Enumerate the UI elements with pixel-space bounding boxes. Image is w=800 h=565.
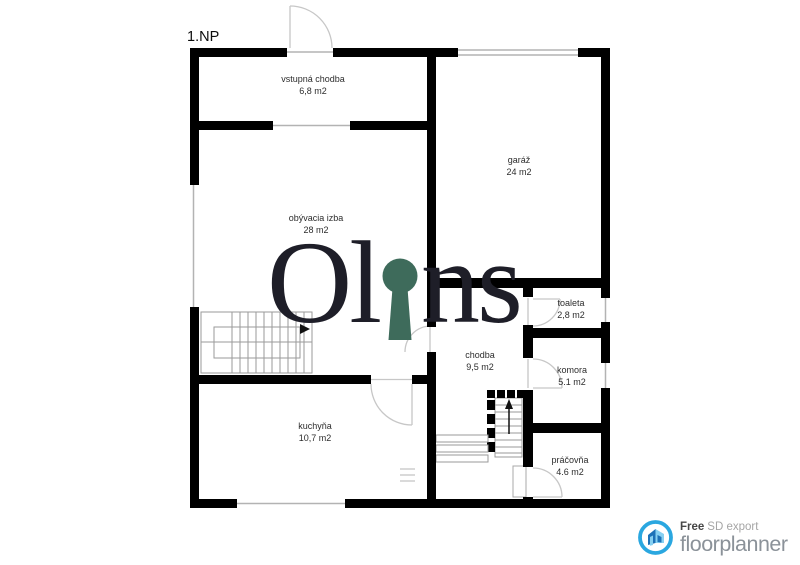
wall-segment xyxy=(523,328,610,338)
stairs-lower-steps xyxy=(436,435,488,462)
wall-segment xyxy=(190,48,287,57)
wall-segment xyxy=(601,388,610,508)
wall-segment xyxy=(190,121,273,130)
front-door-arc xyxy=(290,6,332,48)
wall-segment xyxy=(190,307,199,508)
wall-segment xyxy=(523,423,610,433)
room-label-garaz: garáž 24 m2 xyxy=(449,155,589,178)
room-label-toaleta: toaleta 2,8 m2 xyxy=(501,298,641,321)
watermark-text-left: Ol xyxy=(267,224,379,342)
floorplanner-logo: FreeSD export floorplanner xyxy=(637,519,788,556)
floorplan-canvas: 1.NP xyxy=(0,0,800,565)
room-label-vstupna-chodba: vstupná chodba 6,8 m2 xyxy=(243,74,383,97)
wall-segment xyxy=(190,48,199,185)
garage-door-cap xyxy=(578,48,584,57)
keyhole-icon xyxy=(380,257,420,342)
wall-segment xyxy=(345,499,610,508)
watermark-text-right: ns xyxy=(421,224,520,342)
wall-segment xyxy=(601,48,610,298)
wall-segment xyxy=(523,288,533,297)
room-label-komora: komora 5.1 m2 xyxy=(502,365,642,388)
kitchen-door-arc xyxy=(371,384,412,425)
wall-segment xyxy=(523,497,533,508)
wall-segment xyxy=(601,322,610,363)
room-label-kuchyna: kuchyňa 10,7 m2 xyxy=(245,421,385,444)
wall-segment xyxy=(190,375,371,384)
wall-segment xyxy=(427,352,436,508)
garage-door-cap xyxy=(452,48,458,57)
brand-name: floorplanner xyxy=(680,534,788,555)
room-label-pracovna: práčovňa 4.6 m2 xyxy=(500,455,640,478)
wall-segment xyxy=(350,121,436,130)
radiator-lines xyxy=(400,469,415,481)
floorplanner-badge-icon xyxy=(637,519,674,556)
